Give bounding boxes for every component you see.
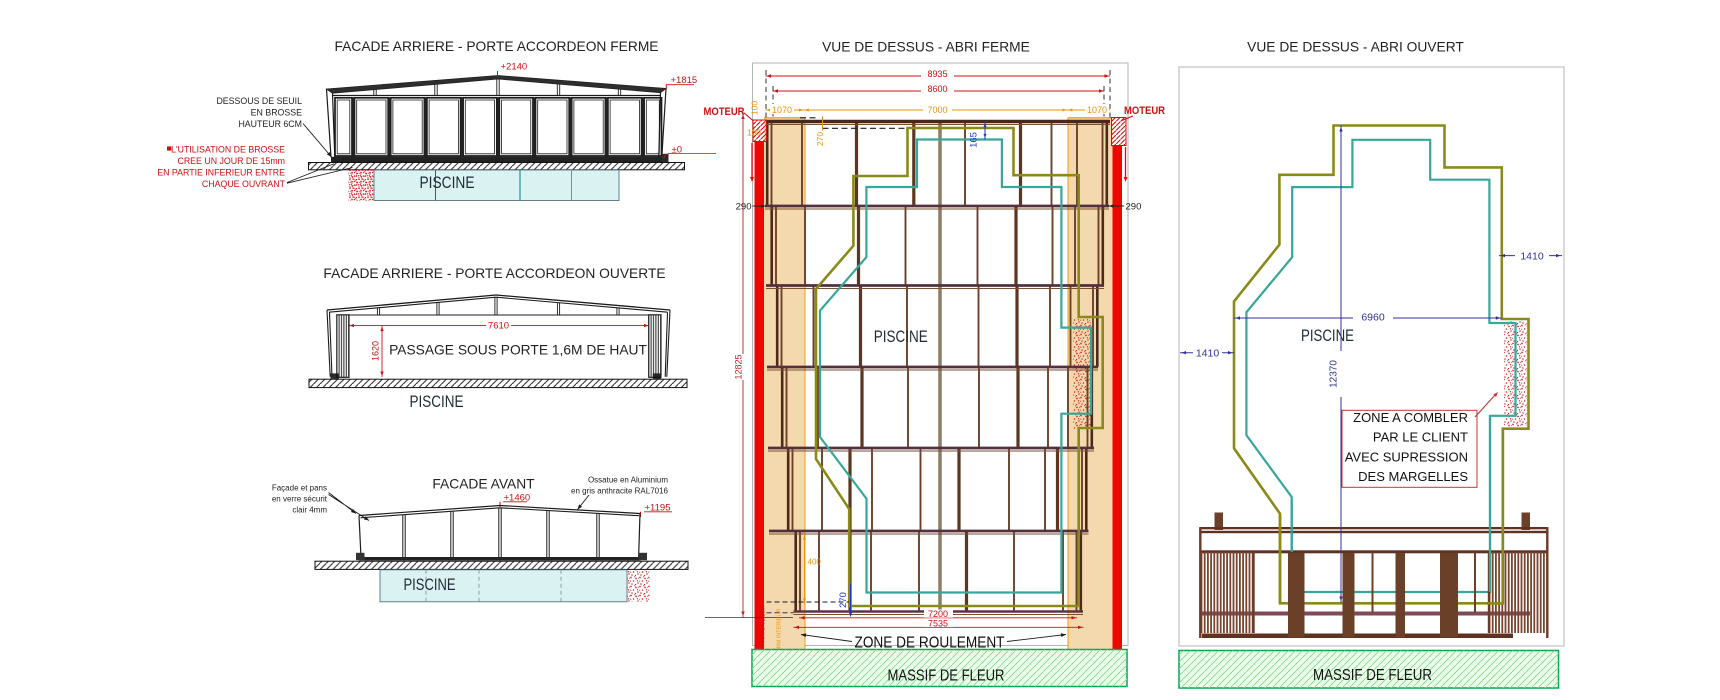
- svg-text:MOTEUR: MOTEUR: [1124, 105, 1165, 117]
- svg-text:Façade et pans: Façade et pans: [272, 484, 327, 493]
- svg-text:DES MARGELLES: DES MARGELLES: [1358, 469, 1468, 484]
- svg-text:8600: 8600: [927, 84, 947, 94]
- svg-text:HAUTEUR 6CM: HAUTEUR 6CM: [238, 119, 302, 129]
- svg-text:7200: 7200: [928, 609, 948, 619]
- svg-text:400: 400: [808, 558, 822, 567]
- svg-text:MINI INTERIEUR: MINI INTERIEUR: [777, 609, 783, 652]
- svg-text:7535: 7535: [928, 618, 948, 628]
- svg-text:290: 290: [736, 202, 752, 213]
- svg-text:12370: 12370: [1329, 360, 1340, 388]
- svg-text:Ossatue en Aluminium: Ossatue en Aluminium: [588, 476, 668, 485]
- svg-text:AVEC SUPRESSION: AVEC SUPRESSION: [1345, 450, 1468, 465]
- svg-text:PISCINE: PISCINE: [874, 328, 928, 346]
- svg-text:L'UTILISATION DE BROSSE: L'UTILISATION DE BROSSE: [171, 145, 285, 155]
- svg-text:6960: 6960: [1361, 312, 1385, 324]
- svg-text:PISCINE: PISCINE: [1301, 327, 1354, 345]
- svg-text:100: 100: [750, 101, 760, 115]
- svg-text:1070: 1070: [772, 105, 792, 115]
- svg-text:1620: 1620: [371, 341, 381, 361]
- svg-text:165: 165: [969, 132, 980, 148]
- svg-text:MOTEUR: MOTEUR: [704, 106, 745, 118]
- svg-text:MASSIF DE FLEUR: MASSIF DE FLEUR: [888, 668, 1005, 685]
- svg-text:RAYON 2.25M: RAYON 2.25M: [761, 606, 767, 642]
- svg-text:270: 270: [815, 132, 825, 146]
- svg-text:7000: 7000: [927, 105, 947, 115]
- svg-text:12825: 12825: [734, 354, 744, 379]
- svg-text:290: 290: [1126, 202, 1142, 213]
- svg-text:EN BROSSE: EN BROSSE: [251, 108, 302, 118]
- svg-text:VUE DE DESSUS - ABRI FERME: VUE DE DESSUS - ABRI FERME: [822, 40, 1030, 55]
- svg-text:1410: 1410: [1520, 251, 1544, 263]
- svg-text:8935: 8935: [927, 69, 947, 79]
- svg-text:MASSIF DE FLEUR: MASSIF DE FLEUR: [1313, 667, 1432, 684]
- svg-text:CREE UN JOUR DE 15mm: CREE UN JOUR DE 15mm: [177, 156, 285, 166]
- svg-text:en gris anthracite RAL7016: en gris anthracite RAL7016: [571, 487, 669, 496]
- svg-text:en verre sécurit: en verre sécurit: [272, 495, 328, 504]
- svg-text:100: 100: [747, 128, 761, 138]
- svg-text:PISCINE: PISCINE: [420, 174, 475, 192]
- svg-text:1070: 1070: [1087, 105, 1107, 115]
- svg-text:PISCINE: PISCINE: [404, 576, 456, 594]
- svg-text:CHAQUE OUVRANT: CHAQUE OUVRANT: [202, 179, 286, 189]
- svg-text:1410: 1410: [1196, 348, 1220, 360]
- svg-text:ZONE A COMBLER: ZONE A COMBLER: [1353, 410, 1468, 425]
- svg-text:FACADE ARRIERE - PORTE ACCORDE: FACADE ARRIERE - PORTE ACCORDEON FERME: [334, 39, 658, 54]
- svg-text:PASSAGE SOUS PORTE 1,6M DE HAU: PASSAGE SOUS PORTE 1,6M DE HAUT: [389, 343, 647, 358]
- svg-text:DESSOUS DE SEUIL: DESSOUS DE SEUIL: [216, 96, 302, 106]
- svg-text:+2140: +2140: [501, 62, 528, 73]
- svg-text:PAR LE CLIENT: PAR LE CLIENT: [1373, 430, 1468, 445]
- svg-text:VUE DE DESSUS - ABRI OUVERT: VUE DE DESSUS - ABRI OUVERT: [1247, 40, 1464, 55]
- svg-text:PISCINE: PISCINE: [410, 393, 464, 411]
- svg-text:FACADE AVANT: FACADE AVANT: [432, 477, 535, 492]
- svg-text:7610: 7610: [488, 321, 509, 332]
- svg-text:EN PARTIE INFERIEUR ENTRE: EN PARTIE INFERIEUR ENTRE: [157, 168, 285, 178]
- svg-text:270: 270: [838, 592, 849, 608]
- svg-text:clair 4mm: clair 4mm: [292, 506, 327, 515]
- svg-text:FACADE ARRIERE - PORTE ACCORDE: FACADE ARRIERE - PORTE ACCORDEON OUVERTE: [323, 266, 665, 281]
